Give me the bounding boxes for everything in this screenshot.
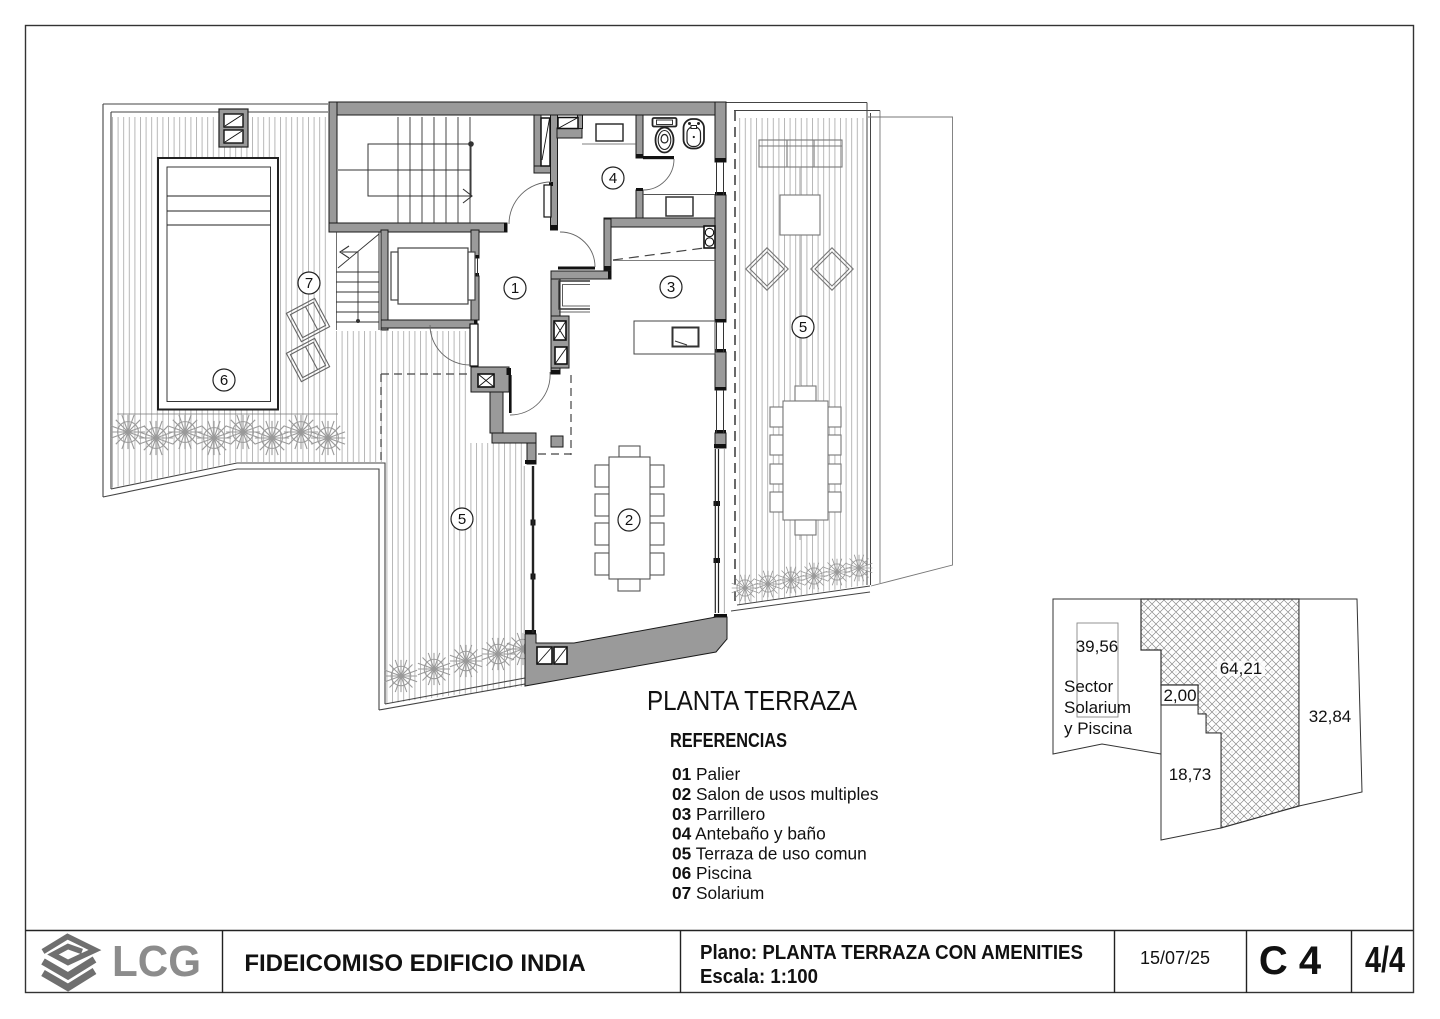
svg-text:7: 7 — [305, 275, 313, 292]
svg-text:01 Palier: 01 Palier — [672, 764, 740, 784]
svg-text:6: 6 — [220, 372, 228, 389]
svg-text:05 Terraza de uso comun: 05 Terraza de uso comun — [672, 844, 867, 864]
svg-text:Solarium: Solarium — [1064, 698, 1131, 717]
svg-text:03 Parrillero: 03 Parrillero — [672, 804, 765, 824]
svg-text:REFERENCIAS: REFERENCIAS — [670, 730, 787, 752]
svg-text:2: 2 — [625, 512, 633, 529]
svg-text:Escala: 1:100: Escala: 1:100 — [700, 966, 818, 988]
svg-text:5: 5 — [799, 319, 807, 336]
svg-text:02 Salon de usos multiples: 02 Salon de usos multiples — [672, 784, 879, 804]
svg-text:4/4: 4/4 — [1365, 939, 1405, 980]
svg-text:1: 1 — [511, 280, 519, 297]
svg-text:Plano: PLANTA TERRAZA CON AMEN: Plano: PLANTA TERRAZA CON AMENITIES — [700, 942, 1083, 964]
svg-text:04 Antebaño y baño: 04 Antebaño y baño — [672, 824, 826, 844]
svg-text:64,21: 64,21 — [1220, 659, 1263, 678]
svg-text:3: 3 — [667, 279, 675, 296]
svg-text:15/07/25: 15/07/25 — [1140, 948, 1210, 968]
svg-text:06 Piscina: 06 Piscina — [672, 863, 752, 883]
svg-text:LCG: LCG — [112, 937, 201, 986]
svg-text:PLANTA TERRAZA: PLANTA TERRAZA — [647, 685, 857, 716]
svg-text:18,73: 18,73 — [1169, 765, 1212, 784]
svg-text:07 Solarium: 07 Solarium — [672, 883, 764, 903]
svg-text:39,56: 39,56 — [1076, 637, 1119, 656]
svg-text:y Piscina: y Piscina — [1064, 719, 1133, 738]
svg-text:2,00: 2,00 — [1163, 686, 1196, 705]
svg-text:FIDEICOMISO EDIFICIO INDIA: FIDEICOMISO EDIFICIO INDIA — [244, 950, 585, 977]
svg-text:C 4: C 4 — [1259, 939, 1322, 983]
svg-text:5: 5 — [458, 511, 466, 528]
svg-text:Sector: Sector — [1064, 677, 1113, 696]
svg-text:32,84: 32,84 — [1309, 707, 1352, 726]
svg-text:4: 4 — [609, 170, 617, 187]
